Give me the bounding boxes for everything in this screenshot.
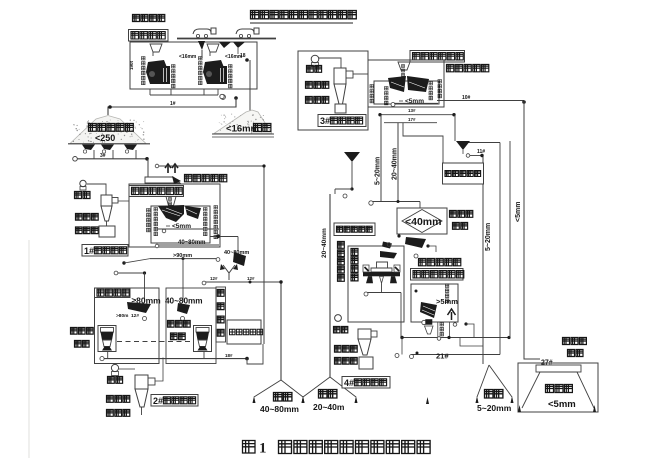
svg-text:12#: 12#: [247, 276, 255, 281]
svg-text:5~20mm: 5~20mm: [477, 403, 512, 413]
svg-text:190t: 190t: [129, 60, 134, 70]
svg-text:<16mm: <16mm: [179, 54, 197, 60]
svg-text:21#: 21#: [436, 352, 449, 361]
svg-text:1#: 1#: [170, 101, 176, 107]
svg-text:10#: 10#: [462, 95, 471, 101]
svg-text:5~20mm: 5~20mm: [485, 223, 492, 251]
svg-text:12#: 12#: [131, 313, 139, 319]
svg-text:>80m: >80m: [116, 313, 128, 319]
svg-text:<5mm: <5mm: [405, 98, 424, 105]
svg-text:3#: 3#: [320, 116, 330, 126]
svg-text:1#: 1#: [84, 246, 94, 256]
svg-text:<5mm: <5mm: [548, 399, 576, 410]
svg-text:4#: 4#: [344, 378, 354, 388]
svg-text:3#: 3#: [100, 153, 106, 159]
svg-text:20~40m: 20~40m: [313, 402, 345, 412]
svg-text:<16mm: <16mm: [226, 124, 259, 135]
svg-text:40~80mm: 40~80mm: [260, 404, 299, 414]
svg-text:20~40mm: 20~40mm: [321, 228, 328, 258]
svg-text:2#: 2#: [153, 396, 163, 406]
svg-text:1: 1: [259, 441, 267, 457]
svg-text:20~40mm: 20~40mm: [392, 148, 399, 180]
svg-text:<250: <250: [95, 133, 115, 143]
svg-text:<40mm: <40mm: [405, 216, 441, 228]
svg-text:5~20mm: 5~20mm: [375, 157, 382, 185]
svg-text:18#: 18#: [225, 353, 233, 358]
svg-text:17#: 17#: [408, 117, 416, 122]
svg-text:13#: 13#: [408, 108, 416, 113]
svg-text:<5mm: <5mm: [515, 202, 522, 222]
svg-text:12#: 12#: [210, 276, 218, 281]
svg-text:18: 18: [240, 53, 246, 59]
